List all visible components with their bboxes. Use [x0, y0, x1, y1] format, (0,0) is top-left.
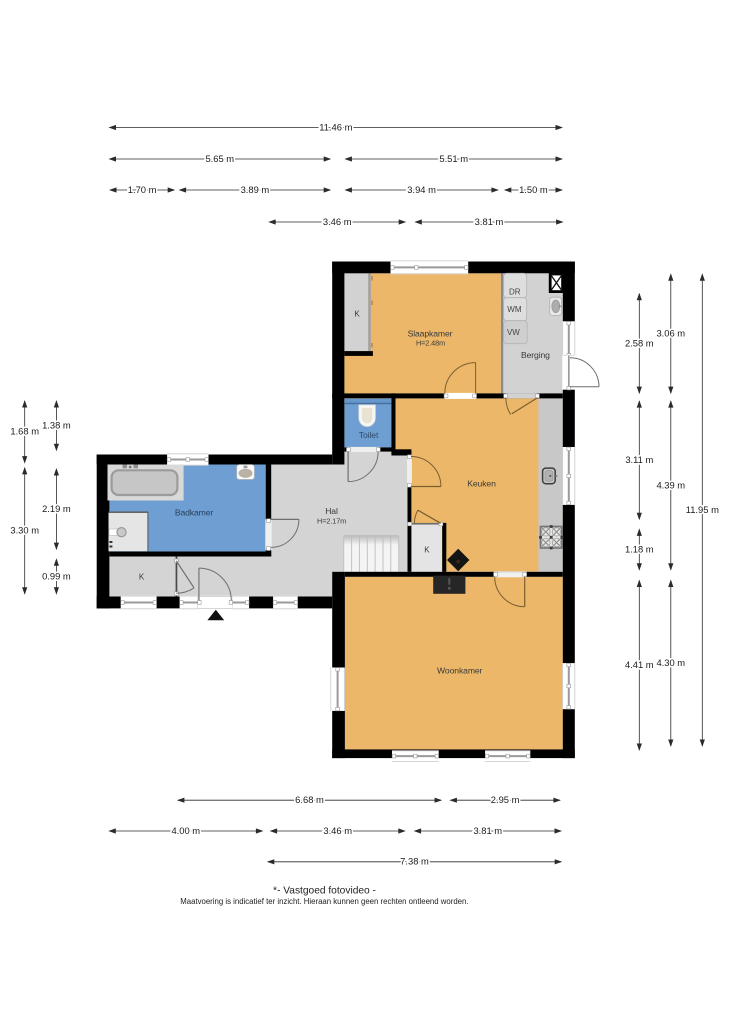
- svg-text:3.81 m: 3.81 m: [473, 825, 502, 836]
- svg-text:4.30 m: 4.30 m: [656, 657, 685, 668]
- svg-text:Woonkamer: Woonkamer: [437, 665, 483, 675]
- svg-text:H=2.17m: H=2.17m: [317, 516, 346, 525]
- svg-text:3.46 m: 3.46 m: [323, 825, 352, 836]
- svg-text:3.06 m: 3.06 m: [656, 328, 685, 339]
- svg-text:3.81 m: 3.81 m: [475, 216, 504, 227]
- svg-text:5.65 m: 5.65 m: [205, 153, 234, 164]
- svg-text:3.30 m: 3.30 m: [10, 525, 39, 536]
- svg-text:DR: DR: [509, 288, 521, 297]
- svg-text:3.89 m: 3.89 m: [241, 184, 270, 195]
- svg-text:Keuken: Keuken: [467, 479, 496, 489]
- svg-text:Hal: Hal: [325, 506, 338, 516]
- svg-text:K: K: [354, 310, 360, 319]
- svg-text:K: K: [424, 545, 430, 554]
- svg-text:4.39 m: 4.39 m: [656, 479, 685, 490]
- svg-text:Maatvoering is indicatief ter: Maatvoering is indicatief ter inzicht. H…: [180, 897, 468, 906]
- svg-text:2.58 m: 2.58 m: [625, 337, 654, 348]
- svg-text:0.99 m: 0.99 m: [42, 570, 71, 581]
- svg-text:H=2.48m: H=2.48m: [416, 338, 445, 347]
- svg-text:11.46 m: 11.46 m: [319, 121, 352, 132]
- svg-text:7.38 m: 7.38 m: [400, 856, 429, 867]
- svg-text:1.68 m: 1.68 m: [10, 426, 39, 437]
- svg-text:1.38 m: 1.38 m: [42, 420, 71, 431]
- svg-text:Berging: Berging: [521, 350, 550, 360]
- svg-text:2.19 m: 2.19 m: [42, 503, 71, 514]
- svg-text:Badkamer: Badkamer: [175, 507, 214, 517]
- svg-text:Slaapkamer: Slaapkamer: [408, 329, 453, 339]
- svg-text:3.46 m: 3.46 m: [323, 216, 352, 227]
- svg-text:4.41 m: 4.41 m: [625, 659, 654, 670]
- svg-text:VW: VW: [507, 328, 520, 337]
- svg-text:Toilet: Toilet: [359, 430, 379, 440]
- svg-text:3.94 m: 3.94 m: [407, 184, 436, 195]
- svg-text:1.18 m: 1.18 m: [625, 543, 654, 554]
- svg-text:*- Vastgoed fotovideo -: *- Vastgoed fotovideo -: [273, 886, 376, 897]
- svg-text:4.00 m: 4.00 m: [171, 825, 200, 836]
- svg-text:1.50 m: 1.50 m: [519, 184, 548, 195]
- svg-text:K: K: [139, 572, 145, 581]
- svg-text:5.51 m: 5.51 m: [439, 153, 468, 164]
- svg-text:11.95 m: 11.95 m: [686, 504, 719, 515]
- svg-text:2.95 m: 2.95 m: [491, 794, 520, 805]
- svg-text:3.11 m: 3.11 m: [625, 454, 653, 465]
- svg-text:6.68 m: 6.68 m: [295, 794, 324, 805]
- svg-text:1.70 m: 1.70 m: [128, 184, 157, 195]
- svg-text:WM: WM: [507, 305, 522, 314]
